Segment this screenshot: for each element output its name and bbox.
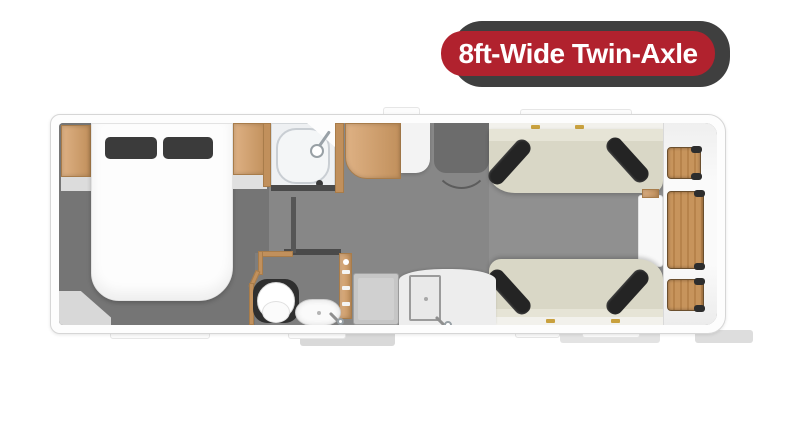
kitchen-unit-inner [358,278,394,320]
drain-icon [424,297,428,301]
screenshot: 8ft-Wide Twin-Axle [0,0,800,440]
washroom-wall [291,197,296,253]
shower-wall [271,185,335,191]
tap-knob-icon [444,321,452,325]
lounge-bottom-shelf [489,317,663,325]
shelf [233,175,267,189]
kitchen-sink [409,275,441,321]
layout-badge: 8ft-Wide Twin-Axle [441,31,715,76]
hinge-icon [611,319,620,323]
wash-basin [295,299,341,325]
shower-wall-wood [335,123,344,193]
door-knob-icon [343,259,349,265]
pillow [105,137,157,159]
wardrobe [345,123,401,179]
washroom-wall-wood [259,251,293,257]
pillow [163,137,213,159]
caravan-interior [59,123,717,325]
worktop [401,123,430,173]
hinge-icon [546,319,555,323]
slatted-door [339,253,352,319]
shower-wall-wood [263,123,271,187]
door-slat [342,302,350,306]
kitchen-counter [399,269,496,325]
kitchen-unit [353,273,399,325]
toilet-lid [262,301,290,323]
shower-head-icon [310,144,324,158]
side-chest [638,195,663,267]
tap-knob-icon [337,318,344,325]
badge-label: 8ft-Wide Twin-Axle [458,38,697,70]
shelf [61,177,91,191]
door-slat [342,286,350,290]
door-swing-arc [434,137,489,189]
front-table [667,147,701,179]
front-table [667,191,704,269]
wardrobe [233,123,267,175]
drain-icon [317,311,321,315]
sofa-backrest [489,129,663,141]
side-chest-top [642,189,659,198]
wardrobe [61,125,91,177]
front-table [667,279,704,311]
caravan-body [50,114,726,334]
door-slat [342,270,350,274]
